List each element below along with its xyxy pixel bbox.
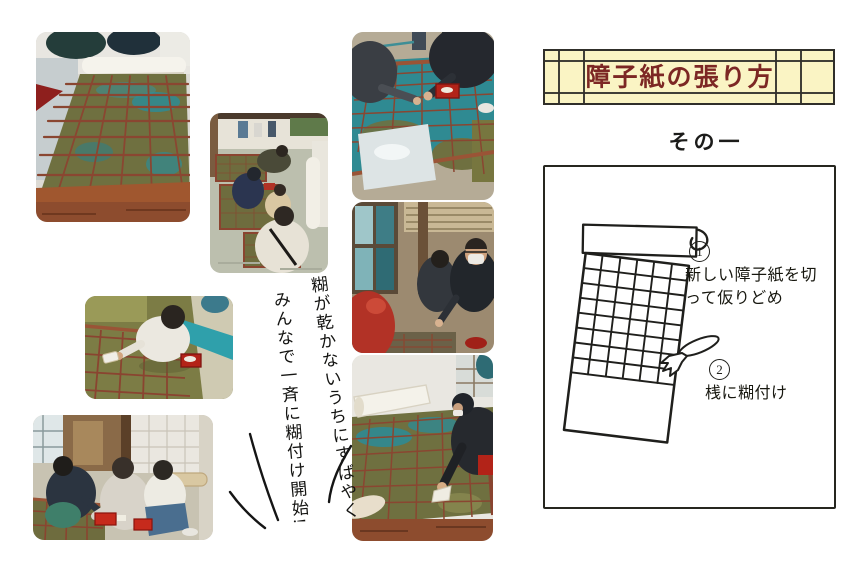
- step-1-text-line2: って仮りどめ: [685, 288, 817, 311]
- step-2-text-line1: 桟に糊付け: [705, 383, 788, 406]
- step-1-number: 1: [689, 241, 710, 262]
- photo-brushing-glue: [352, 355, 493, 541]
- emphasis-strokes: [220, 424, 365, 536]
- step-1: 1 新しい障子紙を切 って仮りどめ: [685, 241, 817, 310]
- photo-lattice-closeup: [36, 32, 190, 222]
- banner-divider-right-inner: [775, 51, 777, 103]
- photo-group-gluing-art: [33, 415, 213, 540]
- photo-lattice-closeup-art: [36, 32, 190, 222]
- photo-glue-prep-art: [352, 202, 494, 353]
- banner-divider-left-outer: [558, 51, 560, 103]
- page: 糊が乾かないうちにすばやく みんなで一斉に糊付け開始! 障子紙の張り方 その一: [0, 0, 865, 579]
- photo-pressing-paper-art: [352, 32, 494, 200]
- photo-room-overview-art: [210, 113, 328, 273]
- page-title: 障子紙の張り方: [585, 58, 775, 94]
- photo-brush-closeup-art: [85, 296, 233, 399]
- photo-room-overview: [210, 113, 328, 273]
- step-1-text-line1: 新しい障子紙を切: [685, 265, 817, 288]
- subtitle: その一: [560, 126, 852, 156]
- title-banner: 障子紙の張り方: [543, 49, 835, 105]
- shoji-sketch: [545, 167, 834, 507]
- photo-pressing-paper: [352, 32, 494, 200]
- step-2-number: 2: [709, 359, 730, 380]
- photo-brushing-glue-art: [352, 355, 493, 541]
- photo-glue-prep: [352, 202, 494, 353]
- banner-divider-right-outer: [800, 51, 802, 103]
- photo-group-gluing: [33, 415, 213, 540]
- diagram-box: 1 新しい障子紙を切 って仮りどめ 2 桟に糊付け: [543, 165, 836, 509]
- photo-brush-closeup: [85, 296, 233, 399]
- step-2: 2 桟に糊付け: [705, 359, 788, 406]
